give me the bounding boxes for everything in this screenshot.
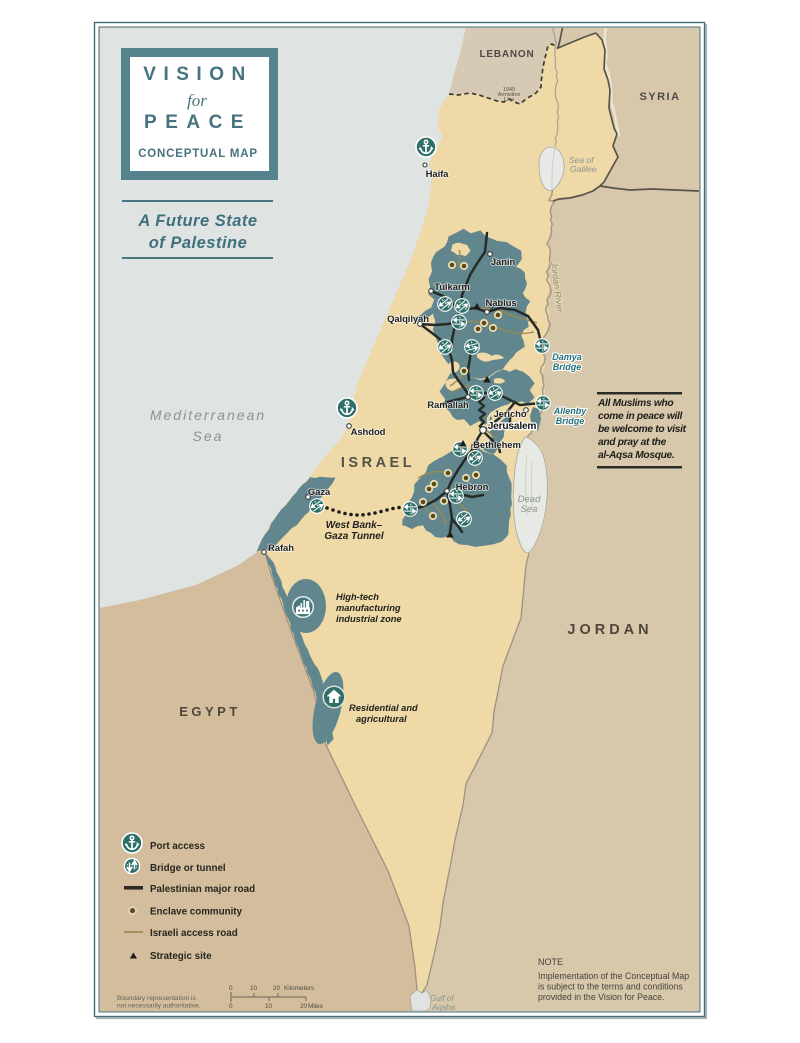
svg-text:Mediterranean: Mediterranean xyxy=(150,407,266,423)
svg-text:Palestinian major road: Palestinian major road xyxy=(150,884,255,895)
svg-text:Allenby: Allenby xyxy=(553,406,588,416)
svg-text:Line: Line xyxy=(504,97,514,103)
svg-text:be welcome to visit: be welcome to visit xyxy=(598,424,687,435)
svg-text:0: 0 xyxy=(229,1003,233,1010)
svg-text:EGYPT: EGYPT xyxy=(179,704,241,719)
svg-text:Strategic site: Strategic site xyxy=(150,951,212,962)
svg-text:Bridge: Bridge xyxy=(553,362,582,372)
svg-text:agricultural: agricultural xyxy=(356,714,407,724)
svg-text:is subject to the terms and co: is subject to the terms and conditions xyxy=(538,982,683,992)
svg-text:VISION: VISION xyxy=(143,64,252,85)
svg-text:and pray at the: and pray at the xyxy=(598,437,667,448)
svg-text:not necessarily authoritative.: not necessarily authoritative. xyxy=(117,1003,201,1010)
svg-text:Ramallah: Ramallah xyxy=(427,400,469,411)
svg-text:Residential and: Residential and xyxy=(349,703,418,713)
svg-text:PEACE: PEACE xyxy=(144,112,252,133)
svg-text:Implementation of the Conceptu: Implementation of the Conceptual Map xyxy=(538,971,689,981)
svg-text:Enclave community: Enclave community xyxy=(150,907,243,918)
svg-text:10: 10 xyxy=(265,1003,273,1010)
svg-text:Qalqilyah: Qalqilyah xyxy=(387,314,429,325)
svg-text:ISRAEL: ISRAEL xyxy=(341,455,415,471)
svg-text:0: 0 xyxy=(229,985,233,992)
svg-text:SYRIA: SYRIA xyxy=(639,91,680,103)
svg-text:provided in the Vision for Pea: provided in the Vision for Peace. xyxy=(538,992,665,1002)
svg-text:20: 20 xyxy=(273,985,281,992)
svg-text:Israeli access road: Israeli access road xyxy=(150,928,238,939)
svg-text:Damya: Damya xyxy=(552,352,582,362)
svg-text:Boundary representation is: Boundary representation is xyxy=(117,995,197,1002)
svg-text:Sea: Sea xyxy=(521,504,538,515)
svg-text:for: for xyxy=(187,91,207,110)
svg-text:al-Aqsa Mosque.: al-Aqsa Mosque. xyxy=(598,450,674,461)
svg-text:10: 10 xyxy=(250,985,258,992)
svg-text:Port access: Port access xyxy=(150,841,206,852)
svg-text:Jericho: Jericho xyxy=(493,409,526,420)
svg-text:Gulf of: Gulf of xyxy=(430,994,454,1003)
svg-text:High-tech: High-tech xyxy=(336,592,379,602)
svg-text:Gaza Tunnel: Gaza Tunnel xyxy=(324,531,383,542)
svg-text:NOTE: NOTE xyxy=(538,957,563,967)
svg-text:Jerusalem: Jerusalem xyxy=(488,421,537,432)
svg-text:Bridge: Bridge xyxy=(556,416,585,426)
svg-text:Bridge or tunnel: Bridge or tunnel xyxy=(150,863,226,874)
svg-text:JORDAN: JORDAN xyxy=(567,622,652,638)
svg-text:Ashdod: Ashdod xyxy=(351,427,386,438)
svg-text:Kilometers: Kilometers xyxy=(284,985,314,992)
svg-text:manufacturing: manufacturing xyxy=(336,603,401,613)
svg-text:Galilee: Galilee xyxy=(570,164,597,174)
svg-text:All Muslims who: All Muslims who xyxy=(597,398,673,409)
svg-text:Janin: Janin xyxy=(491,257,516,268)
svg-text:CONCEPTUAL MAP: CONCEPTUAL MAP xyxy=(138,148,258,160)
svg-text:Haifa: Haifa xyxy=(426,169,450,180)
svg-text:Gaza: Gaza xyxy=(308,487,331,498)
svg-text:West Bank–: West Bank– xyxy=(326,520,383,531)
svg-text:industrial zone: industrial zone xyxy=(336,614,402,624)
svg-text:Miles: Miles xyxy=(308,1003,323,1010)
svg-text:come in peace will: come in peace will xyxy=(598,411,683,422)
svg-text:Aqaba: Aqaba xyxy=(431,1003,456,1012)
svg-text:20: 20 xyxy=(300,1003,308,1010)
svg-text:LEBANON: LEBANON xyxy=(479,49,534,60)
svg-text:A Future State: A Future State xyxy=(137,212,257,230)
svg-text:Tulkarm: Tulkarm xyxy=(434,282,470,293)
svg-text:Sea: Sea xyxy=(193,428,224,444)
svg-text:Nablus: Nablus xyxy=(485,298,516,309)
svg-text:Bethlehem: Bethlehem xyxy=(473,440,521,451)
svg-text:Hebron: Hebron xyxy=(456,482,489,493)
svg-text:Rafah: Rafah xyxy=(268,543,294,554)
svg-text:of Palestine: of Palestine xyxy=(149,234,248,252)
